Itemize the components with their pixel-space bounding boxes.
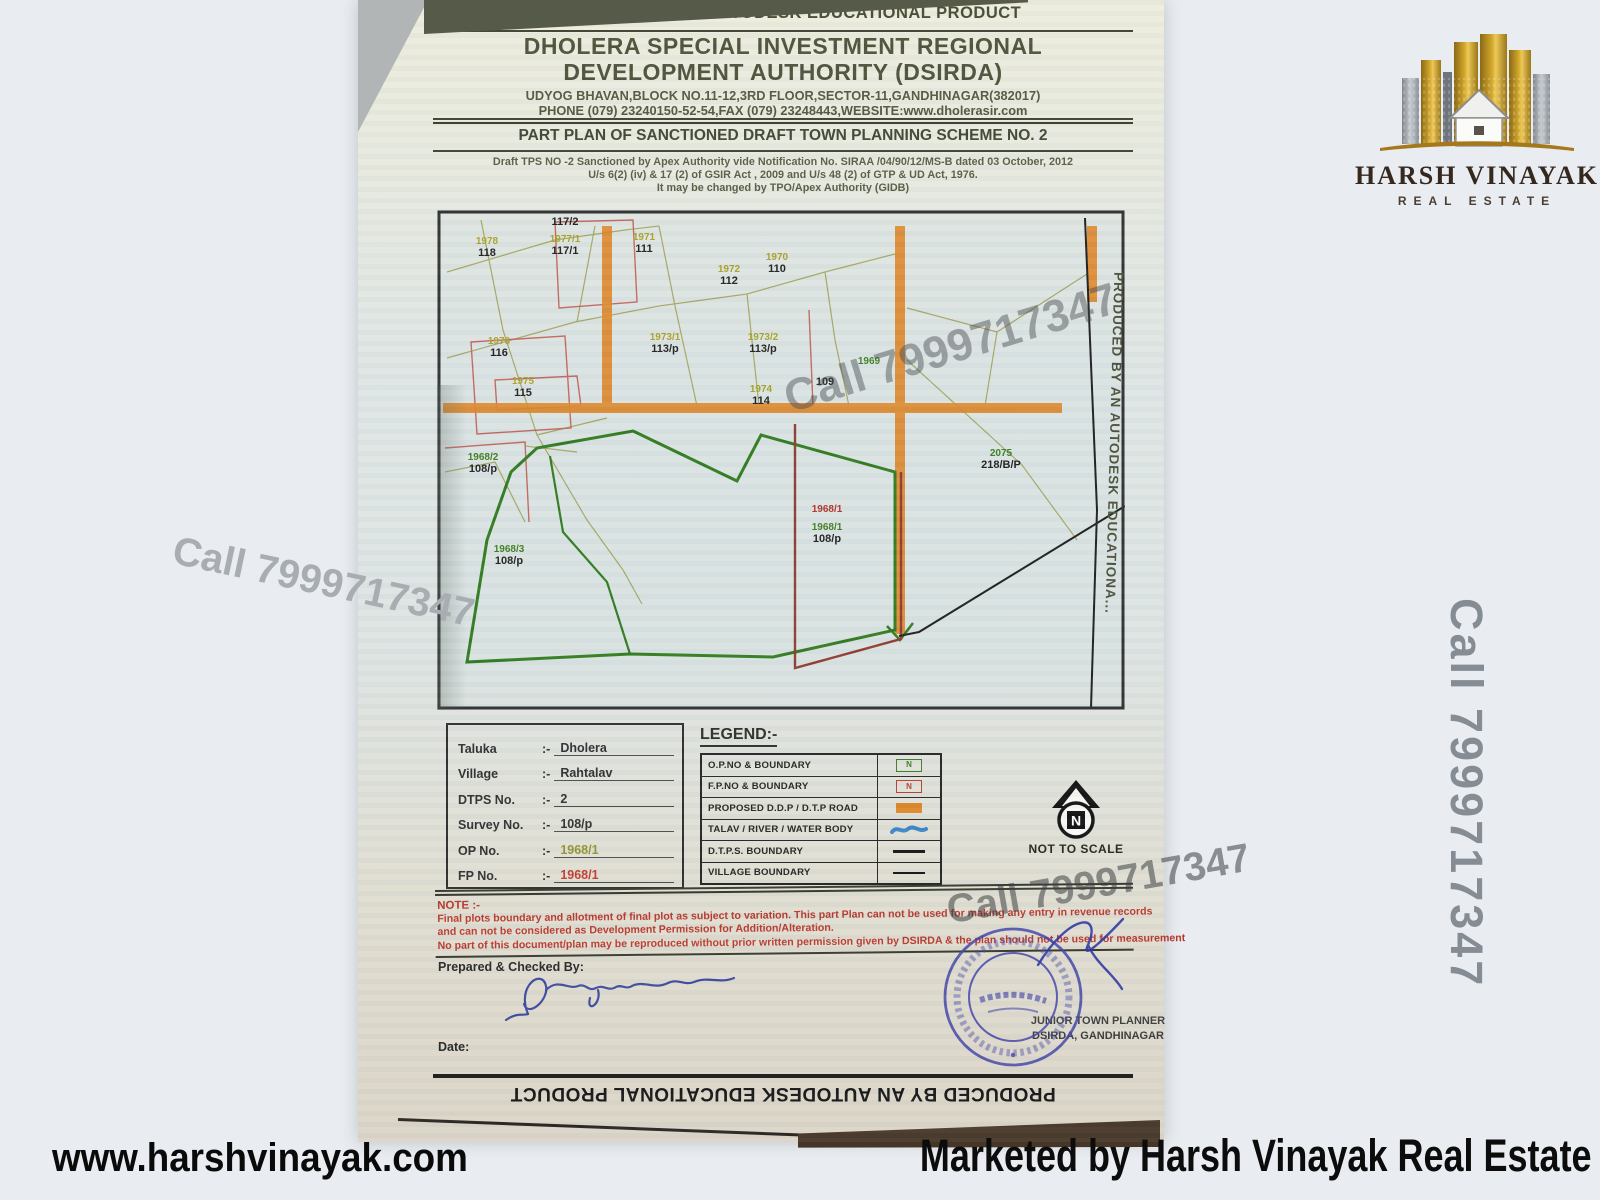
map-plot-label: 117/2 xyxy=(552,216,579,228)
date-label: Date: xyxy=(438,1040,469,1054)
notification-line1: Draft TPS NO -2 Sanctioned by Apex Autho… xyxy=(433,156,1133,168)
north-arrow-icon: N xyxy=(1048,778,1104,845)
map-plot-label: 1973/2113/p xyxy=(748,332,779,356)
fp-number-box-icon: N xyxy=(877,777,940,798)
round-stamp xyxy=(918,905,1148,1090)
info-row-fp: FP No.:-1968/1 xyxy=(458,860,674,883)
water-wave-icon xyxy=(877,820,940,841)
legend-row: O.P.NO & BOUNDARY N xyxy=(702,755,940,777)
divider xyxy=(433,150,1133,152)
boundary-line-icon xyxy=(877,863,940,884)
page-bottom-edge xyxy=(398,1118,818,1137)
scanned-plan-flyer: PRODUCED BY AN AUTODESK EDUCATIONAL PROD… xyxy=(0,0,1600,1200)
map-plot-label: 1968/1 xyxy=(812,504,843,515)
map-drawing xyxy=(437,210,1125,710)
divider xyxy=(433,118,1133,120)
map-plot-label: 1978118 xyxy=(476,236,498,260)
map-plot-label: 1971111 xyxy=(633,232,655,256)
op-number-box-icon: N xyxy=(877,755,940,776)
map-plot-label: 1969 xyxy=(858,356,880,367)
signature xyxy=(498,956,768,1038)
plan-title: PART PLAN OF SANCTIONED DRAFT TOWN PLANN… xyxy=(433,127,1133,145)
map-plot-label: 1970110 xyxy=(766,252,788,276)
website-url: www.harshvinayak.com xyxy=(52,1136,468,1181)
map-plot-label: 1976116 xyxy=(488,336,510,360)
legend-row: F.P.NO & BOUNDARY N xyxy=(702,777,940,799)
map-plot-label: 1968/2108/p xyxy=(468,452,499,476)
marketed-by-text: Marketed by Harsh Vinayak Real Estate xyxy=(920,1130,1592,1182)
info-row-op: OP No.:-1968/1 xyxy=(458,835,674,858)
legend-row: VILLAGE BOUNDARY xyxy=(702,863,940,884)
authority-name-line1: DHOLERA SPECIAL INVESTMENT REGIONAL xyxy=(433,33,1133,60)
map-plot-label: 2075218/B/P xyxy=(981,448,1021,472)
authority-name-line2: DEVELOPMENT AUTHORITY (DSIRDA) xyxy=(433,59,1133,86)
divider xyxy=(433,30,1133,32)
plot-info-table: Taluka:-Dholera Village:-Rahtalav DTPS N… xyxy=(446,723,684,889)
map-plot-label: 1968/1108/p xyxy=(812,522,843,546)
info-row-dtps: DTPS No.:-2 xyxy=(458,784,674,807)
info-row-survey: Survey No.:-108/p xyxy=(458,809,674,832)
authority-address: UDYOG BHAVAN,BLOCK NO.11-12,3RD FLOOR,SE… xyxy=(433,88,1133,103)
info-row-village: Village:-Rahtalav xyxy=(458,758,674,781)
map-plot-label: 1973/1113/p xyxy=(650,332,681,356)
autodesk-banner-bottom-reversed: PRODUCED BY AN AUTODESK EDUCATIONAL PROD… xyxy=(443,1082,1123,1104)
scanned-document: PRODUCED BY AN AUTODESK EDUCATIONAL PROD… xyxy=(358,0,1164,1142)
authority-phone: PHONE (079) 23240150-52-54,FAX (079) 232… xyxy=(433,103,1133,118)
map-plot-label: 1974114 xyxy=(750,384,772,408)
divider xyxy=(433,1074,1133,1078)
legend-row: D.T.P.S. BOUNDARY xyxy=(702,841,940,863)
legend-title: LEGEND:- xyxy=(700,726,777,747)
notification-line2: U/s 6(2) (iv) & 17 (2) of GSIR Act , 200… xyxy=(433,169,1133,181)
legend-row: TALAV / RIVER / WATER BODY xyxy=(702,820,940,842)
logo-subtitle: REAL ESTATE xyxy=(1352,194,1600,208)
buildings-icon xyxy=(1372,26,1582,154)
legend-row: PROPOSED D.D.P / D.T.P ROAD xyxy=(702,798,940,820)
map-plot-label: 1975115 xyxy=(512,376,534,400)
not-to-scale-label: NOT TO SCALE xyxy=(1006,842,1146,856)
town-planning-map: 1978118 117/2 1977/1117/1 1971111 197011… xyxy=(437,210,1125,710)
harsh-vinayak-logo: HARSH VINAYAK REAL ESTATE xyxy=(1352,26,1600,208)
info-row-taluka: Taluka:-Dholera xyxy=(458,733,674,756)
legend-table: O.P.NO & BOUNDARY N F.P.NO & BOUNDARY N … xyxy=(700,753,942,885)
map-plot-label: 1972112 xyxy=(718,264,740,288)
road-swatch-icon xyxy=(877,798,940,819)
map-plot-label: 1968/3108/p xyxy=(494,544,525,568)
scanner-shadow-corner xyxy=(358,0,428,132)
map-plot-label: 1977/1117/1 xyxy=(550,234,581,258)
map-plot-label: 109 xyxy=(816,376,834,388)
divider xyxy=(433,122,1133,124)
paper-crease-shadow xyxy=(437,385,467,710)
logo-title: HARSH VINAYAK xyxy=(1352,161,1600,191)
svg-text:N: N xyxy=(1071,813,1081,829)
phone-watermark-vertical: Call 7999717347 xyxy=(1440,598,1492,988)
notification-line3: It may be changed by TPO/Apex Authority … xyxy=(433,182,1133,194)
boundary-line-icon xyxy=(877,841,940,862)
